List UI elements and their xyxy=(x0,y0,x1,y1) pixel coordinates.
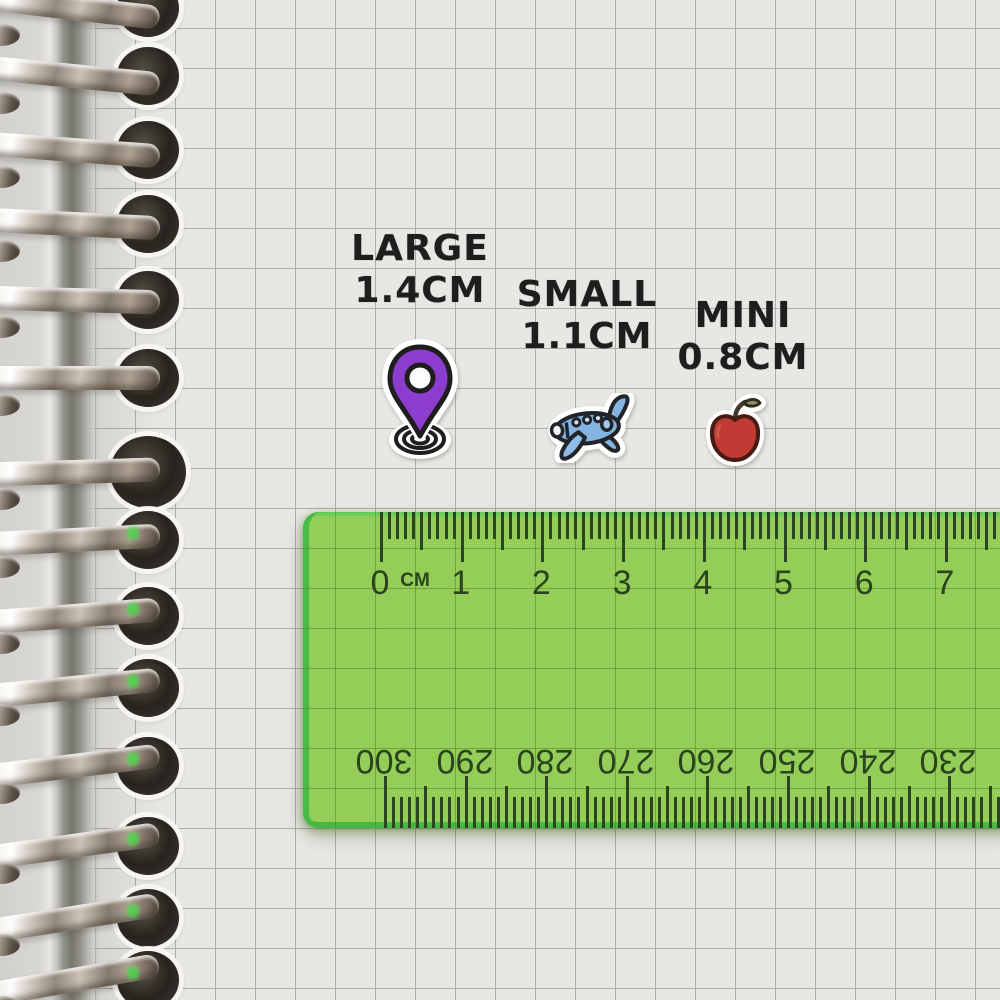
ruler-tick xyxy=(577,797,580,828)
ruler-tick xyxy=(706,776,709,828)
ruler-tick xyxy=(687,512,690,539)
ruler-tick xyxy=(501,512,504,550)
airplane-icon xyxy=(549,396,633,460)
ruler-tick xyxy=(827,786,830,828)
ruler-tick xyxy=(714,797,717,828)
ruler-tick xyxy=(513,797,516,828)
sticker-airplane xyxy=(540,393,640,463)
ruler-tick xyxy=(851,797,854,828)
ruler-tick xyxy=(759,512,762,539)
label-name: LARGE xyxy=(351,228,489,270)
ruler-tick xyxy=(436,512,439,539)
ruler-tick xyxy=(646,512,649,539)
ruler-tick xyxy=(763,797,766,828)
sticker-location-pin xyxy=(381,339,459,465)
green-reflection xyxy=(126,963,140,983)
binding-ring xyxy=(0,950,200,1000)
ruler-number-mm: 230 xyxy=(920,741,977,780)
ruler-tick xyxy=(461,512,464,562)
ruler-number-mm: 280 xyxy=(517,741,574,780)
ruler-tick xyxy=(843,797,846,828)
ruler-tick xyxy=(848,512,851,539)
notebook-page: LARGE 1.4CM SMALL 1.1CM MINI 0.8CM xyxy=(0,0,1000,1000)
ruler-tick xyxy=(811,797,814,828)
ruler-tick xyxy=(735,512,738,539)
ruler-tick xyxy=(993,512,996,539)
ruler-tick xyxy=(972,797,975,828)
ruler-tick xyxy=(634,797,637,828)
ruler-unit-label: CM xyxy=(400,570,430,592)
ruler-tick xyxy=(997,797,1000,828)
ruler-tick xyxy=(880,512,883,539)
ruler-tick xyxy=(473,797,476,828)
ruler-number: 2 xyxy=(532,564,551,603)
ruler-number: 3 xyxy=(613,564,632,603)
ruler-tick xyxy=(533,512,536,539)
ruler-tick xyxy=(905,512,908,550)
label-name: MINI xyxy=(677,295,808,337)
ruler-tick xyxy=(469,512,472,539)
ruler-tick xyxy=(457,797,460,828)
ruler-tick xyxy=(980,797,983,828)
ruler-tick xyxy=(856,512,859,539)
ruler-tick xyxy=(505,786,508,828)
ruler-tick xyxy=(408,797,411,828)
ruler-tick xyxy=(727,512,730,539)
label-size: 0.8CM xyxy=(677,337,808,379)
ruler-tick xyxy=(440,797,443,828)
binding-ring xyxy=(0,586,200,646)
ruler-tick xyxy=(743,512,746,550)
ruler-tick xyxy=(626,776,629,828)
ruler-number-mm: 250 xyxy=(759,741,816,780)
binding-ring xyxy=(0,658,200,718)
ruler-tick xyxy=(541,512,544,562)
binding-ring xyxy=(0,736,200,796)
ruler-tick xyxy=(642,797,645,828)
green-reflection xyxy=(126,901,140,921)
ruler-tick xyxy=(771,797,774,828)
ruler-number: 0 xyxy=(371,564,390,603)
ruler-tick xyxy=(924,797,927,828)
ruler-tick xyxy=(650,797,653,828)
ruler-tick xyxy=(420,512,423,550)
ruler-tick xyxy=(779,797,782,828)
binding-ring xyxy=(0,120,200,180)
green-reflection xyxy=(126,523,140,543)
ruler-tick xyxy=(622,512,625,562)
ruler-tick xyxy=(932,797,935,828)
binding-ring xyxy=(0,816,200,876)
ruler-tick xyxy=(747,786,750,828)
green-reflection xyxy=(126,829,140,849)
ruler-tick xyxy=(525,512,528,539)
binding-ring xyxy=(0,194,200,254)
ruler-tick xyxy=(775,512,778,539)
ruler-tick xyxy=(558,512,561,539)
ruler-tick xyxy=(453,512,456,539)
ruler-tick xyxy=(666,786,669,828)
size-label-small: SMALL 1.1CM xyxy=(517,274,658,358)
ruler-tick xyxy=(465,776,468,828)
ruler-tick xyxy=(432,797,435,828)
ruler-tick xyxy=(529,797,532,828)
ruler-tick xyxy=(412,512,415,539)
ruler-tick xyxy=(586,786,589,828)
ruler-tick xyxy=(396,512,399,539)
ruler-tick xyxy=(553,797,556,828)
ruler-tick xyxy=(800,512,803,539)
ruler-tick xyxy=(574,512,577,539)
ruler-tick xyxy=(380,512,383,562)
binding-ring xyxy=(0,348,200,408)
ruler-tick xyxy=(892,797,895,828)
ruler-tick xyxy=(945,512,948,562)
ruler-tick xyxy=(767,512,770,539)
size-label-large: LARGE 1.4CM xyxy=(351,228,489,312)
ruler-tick xyxy=(989,786,992,828)
ruler-tick xyxy=(392,797,395,828)
ruler-tick xyxy=(384,776,387,828)
size-label-mini: MINI 0.8CM xyxy=(677,295,808,379)
ruler-tick xyxy=(964,797,967,828)
location-pin-icon xyxy=(389,347,451,459)
ruler: 01234567 300290280270260250240230 CM xyxy=(303,512,1000,828)
binding-ring xyxy=(0,442,200,502)
ruler-tick xyxy=(549,512,552,539)
ruler-tick xyxy=(787,776,790,828)
ruler-tick xyxy=(884,797,887,828)
ruler-tick xyxy=(929,512,932,539)
ruler-tick xyxy=(896,512,899,539)
ruler-tick xyxy=(703,512,706,562)
ruler-tick xyxy=(489,797,492,828)
ruler-tick xyxy=(509,512,512,539)
ruler-tick xyxy=(711,512,714,539)
ruler-tick xyxy=(723,797,726,828)
ruler-tick xyxy=(582,512,585,550)
ruler-tick xyxy=(485,512,488,539)
ruler-number: 7 xyxy=(935,564,954,603)
ruler-tick xyxy=(566,512,569,539)
ruler-number: 4 xyxy=(693,564,712,603)
ruler-tick xyxy=(662,512,665,550)
ruler-tick xyxy=(517,512,520,539)
ruler-tick xyxy=(545,776,548,828)
ruler-number-mm: 290 xyxy=(436,741,493,780)
ruler-tick xyxy=(602,797,605,828)
ruler-tick xyxy=(682,797,685,828)
ruler-tick xyxy=(977,512,980,539)
ruler-tick xyxy=(477,512,480,539)
binding-ring xyxy=(0,46,200,106)
ruler-tick xyxy=(921,512,924,539)
ruler-tick xyxy=(872,512,875,539)
ruler-tick xyxy=(679,512,682,539)
ruler-number: 1 xyxy=(451,564,470,603)
ruler-tick xyxy=(819,797,822,828)
label-size: 1.4CM xyxy=(351,270,489,312)
apple-icon xyxy=(712,399,760,460)
ruler-tick xyxy=(900,797,903,828)
ruler-number: 6 xyxy=(855,564,874,603)
binding-ring xyxy=(0,270,200,330)
ruler-tick xyxy=(388,512,391,539)
ruler-tick xyxy=(731,797,734,828)
ruler-tick xyxy=(888,512,891,539)
ruler-tick xyxy=(908,786,911,828)
ruler-tick xyxy=(719,512,722,539)
binding-ring xyxy=(0,0,200,38)
ruler-transparency xyxy=(303,512,1000,828)
ruler-tick xyxy=(961,512,964,539)
ruler-tick xyxy=(594,797,597,828)
ruler-tick xyxy=(481,797,484,828)
ruler-tick xyxy=(695,512,698,539)
ring-wire xyxy=(0,0,161,30)
ruler-tick xyxy=(840,512,843,539)
ruler-tick xyxy=(784,512,787,562)
ruler-tick xyxy=(953,512,956,539)
ruler-tick xyxy=(598,512,601,539)
ruler-tick xyxy=(658,797,661,828)
ruler-tick xyxy=(618,797,621,828)
ruler-tick xyxy=(792,512,795,539)
ruler-tick xyxy=(816,512,819,539)
binding-ring xyxy=(0,510,200,570)
ruler-tick xyxy=(445,512,448,539)
ruler-tick xyxy=(969,512,972,539)
ruler-tick xyxy=(698,797,701,828)
ruler-tick xyxy=(537,797,540,828)
ring-wire xyxy=(0,366,160,390)
ruler-tick xyxy=(493,512,496,539)
ruler-tick xyxy=(751,512,754,539)
ruler-tick xyxy=(448,797,451,828)
ruler-tick xyxy=(404,512,407,539)
ruler-tick xyxy=(940,797,943,828)
green-reflection xyxy=(126,599,140,619)
sticker-apple xyxy=(703,392,767,468)
ruler-tick xyxy=(832,512,835,539)
ruler-tick xyxy=(755,797,758,828)
ruler-tick xyxy=(590,512,593,539)
ruler-tick xyxy=(795,797,798,828)
ruler-tick xyxy=(497,797,500,828)
label-name: SMALL xyxy=(517,274,658,316)
ruler-tick xyxy=(606,512,609,539)
green-reflection xyxy=(126,671,140,691)
ruler-tick xyxy=(985,512,988,550)
ruler-tick xyxy=(614,512,617,539)
ruler-tick xyxy=(835,797,838,828)
ruler-tick xyxy=(424,786,427,828)
ruler-tick xyxy=(860,797,863,828)
ruler-tick xyxy=(803,797,806,828)
ruler-number-mm: 270 xyxy=(597,741,654,780)
ruler-tick xyxy=(948,776,951,828)
ruler-tick xyxy=(916,797,919,828)
ruler-tick xyxy=(956,797,959,828)
ruler-tick xyxy=(638,512,641,539)
ruler-tick xyxy=(521,797,524,828)
ruler-tick xyxy=(400,797,403,828)
binding-ring xyxy=(0,888,200,948)
ruler-tick xyxy=(630,512,633,539)
ruler-tick xyxy=(569,797,572,828)
ruler-number-mm: 300 xyxy=(356,741,413,780)
ruler-tick xyxy=(824,512,827,550)
ruler-tick xyxy=(416,797,419,828)
ruler-tick xyxy=(739,797,742,828)
ruler-tick xyxy=(610,797,613,828)
ruler-tick xyxy=(864,512,867,562)
ruler-tick xyxy=(561,797,564,828)
ruler-tick xyxy=(913,512,916,539)
ruler-number: 5 xyxy=(774,564,793,603)
ruler-tick xyxy=(674,797,677,828)
green-reflection xyxy=(126,749,140,769)
ruler-number-mm: 240 xyxy=(839,741,896,780)
ring-wire xyxy=(0,286,160,315)
ruler-number-mm: 260 xyxy=(678,741,735,780)
ruler-tick xyxy=(876,797,879,828)
ruler-tick xyxy=(690,797,693,828)
label-size: 1.1CM xyxy=(517,316,658,358)
ruler-tick xyxy=(808,512,811,539)
ruler-tick xyxy=(868,776,871,828)
ruler-tick xyxy=(654,512,657,539)
ruler-tick xyxy=(671,512,674,539)
ruler-tick xyxy=(937,512,940,539)
ruler-tick xyxy=(428,512,431,539)
